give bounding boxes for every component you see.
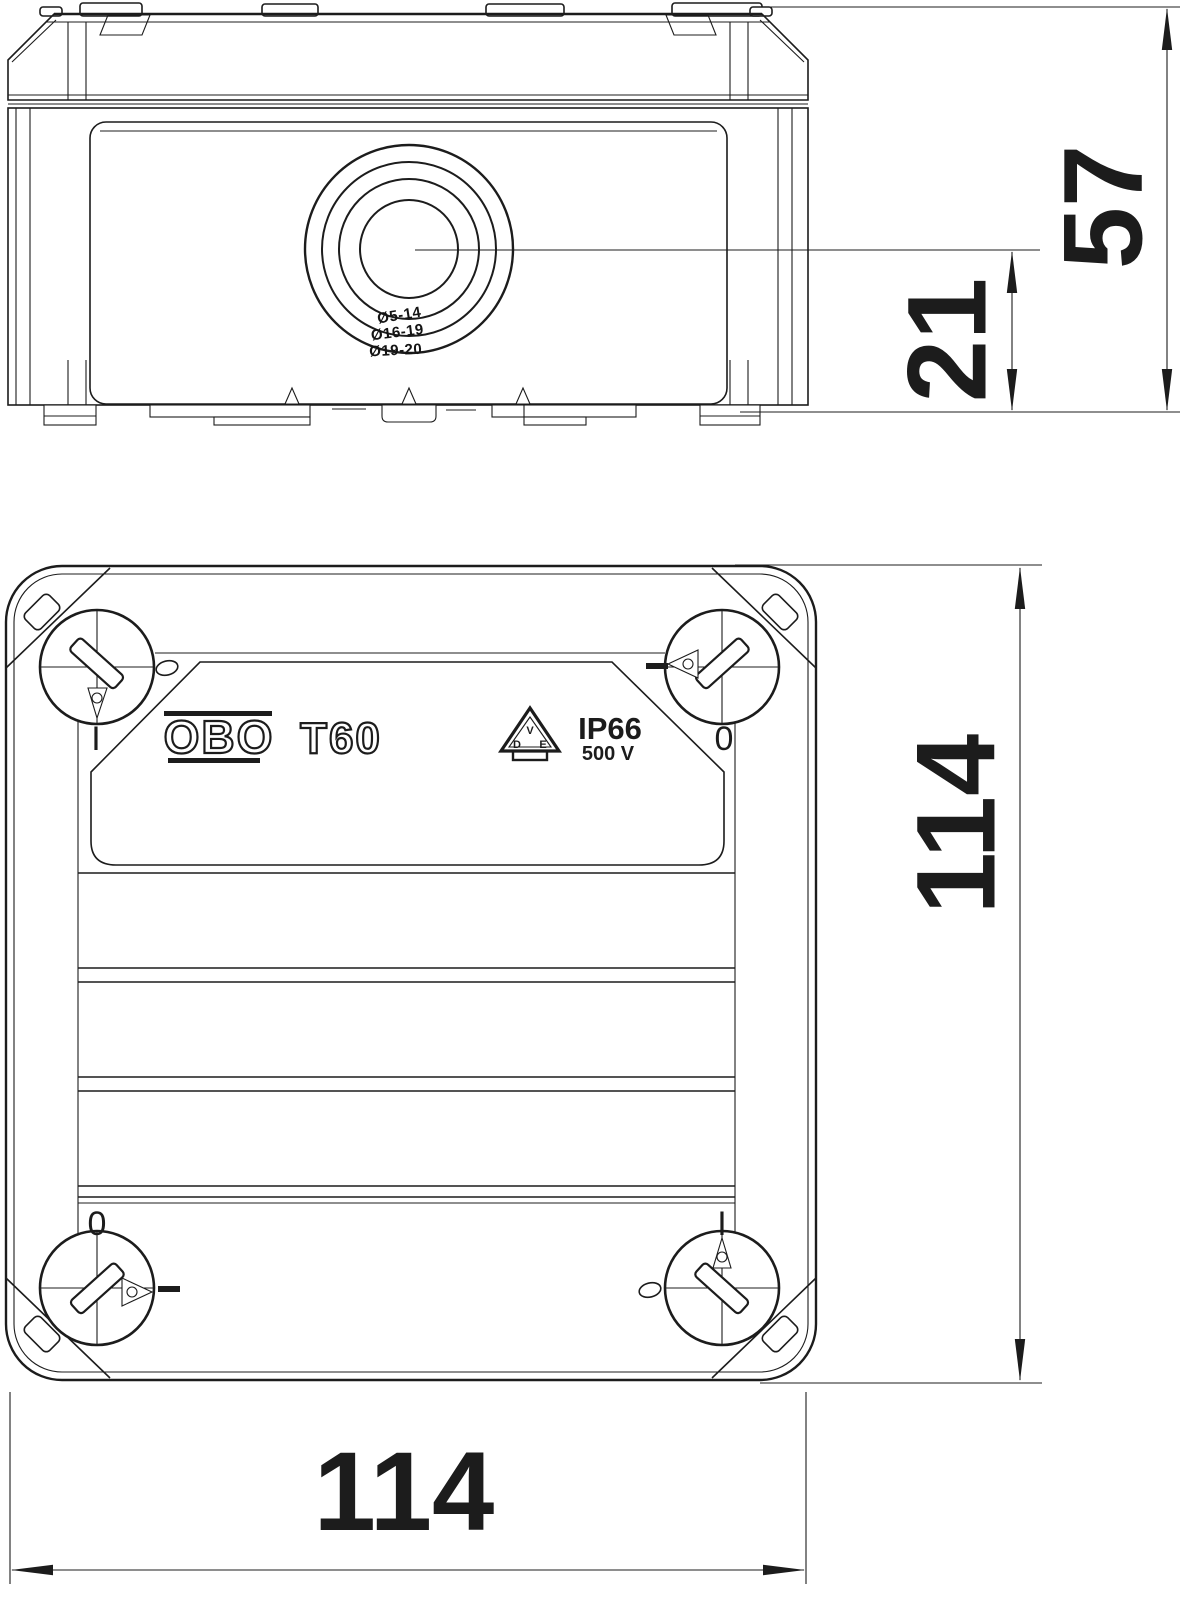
side-view: Ø5-14 Ø16-19 Ø19-20	[8, 3, 808, 425]
mold-mark-oval	[638, 1281, 663, 1300]
dim-value-114-width: 114	[314, 1429, 495, 1554]
obo-logo-text: OBO	[164, 711, 275, 763]
vde-letter-v: V	[526, 725, 534, 737]
dash-mark	[646, 663, 668, 669]
technical-drawing: Ø5-14 Ø16-19 Ø19-20	[0, 0, 1200, 1606]
lid-latch-detail-right	[666, 15, 716, 35]
ip-rating-label: IP66	[578, 711, 642, 746]
box-body: Ø5-14 Ø16-19 Ø19-20	[8, 108, 808, 405]
position-mark: I	[717, 1205, 726, 1243]
position-mark: 0	[88, 1205, 107, 1243]
dimensions: 57 21 114 114	[10, 7, 1180, 1584]
vde-letter-e: E	[539, 739, 546, 751]
grommet-range-outer: Ø19-20	[369, 341, 423, 361]
lid-latch-detail-left	[100, 15, 150, 35]
dash-mark	[158, 1286, 180, 1292]
screw-bottom-right: I	[638, 1205, 779, 1345]
dim-value-114-depth: 114	[894, 734, 1019, 915]
model-label: T60	[300, 714, 382, 763]
obo-logo: OBO	[164, 711, 275, 763]
dim-value-57: 57	[1041, 145, 1166, 270]
vde-mark-icon: V D E	[501, 708, 559, 760]
mounting-feet	[44, 405, 760, 425]
lid	[8, 14, 808, 100]
position-mark: 0	[715, 720, 734, 758]
dimension-width: 114	[10, 1392, 806, 1584]
top-view: OBO T60 V D E IP66 500 V	[6, 566, 816, 1380]
position-mark: I	[91, 720, 100, 758]
screw-top-left: I	[40, 610, 179, 758]
drawing-canvas: Ø5-14 Ø16-19 Ø19-20	[0, 0, 1200, 1606]
screw-top-right: 0	[646, 610, 779, 758]
dim-value-21: 21	[885, 278, 1010, 403]
cable-entry-grommet: Ø5-14 Ø16-19 Ø19-20	[305, 145, 513, 360]
mold-mark-oval	[155, 659, 180, 678]
dimension-depth: 114	[735, 565, 1042, 1383]
corner-ear-top-right	[760, 592, 800, 632]
front-face	[90, 122, 727, 404]
marking-plate: OBO T60 V D E IP66 500 V	[91, 662, 724, 865]
voltage-label: 500 V	[582, 743, 635, 765]
screw-bottom-left: 0	[40, 1205, 180, 1345]
alignment-triangles	[285, 388, 530, 404]
vde-letter-d: D	[513, 739, 521, 751]
